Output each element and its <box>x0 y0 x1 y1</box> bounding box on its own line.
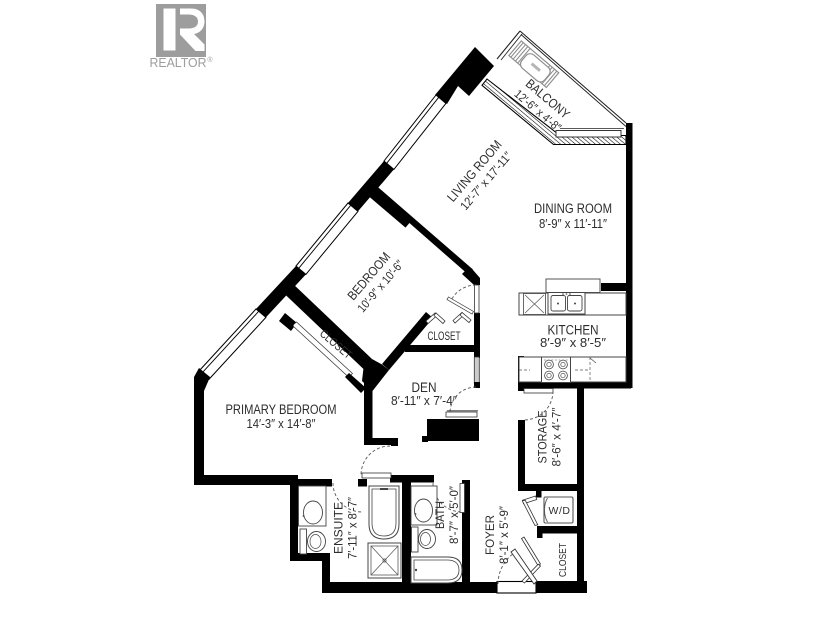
svg-text:8′-9″ x 8′-5″: 8′-9″ x 8′-5″ <box>540 336 607 350</box>
svg-text:STORAGE: STORAGE <box>536 411 550 464</box>
svg-text:W/D: W/D <box>549 505 571 517</box>
svg-text:DINING ROOM: DINING ROOM <box>534 201 612 216</box>
svg-text:CLOSET: CLOSET <box>557 543 569 577</box>
svg-text:14′-3″ x 14′-8″: 14′-3″ x 14′-8″ <box>247 417 317 431</box>
svg-text:8′-7″ x 5′-0″: 8′-7″ x 5′-0″ <box>449 486 461 544</box>
svg-text:FOYER: FOYER <box>483 515 497 555</box>
svg-text:®: ® <box>207 56 213 64</box>
svg-text:DEN: DEN <box>412 380 437 395</box>
svg-text:8′-6″ x 4′-7″: 8′-6″ x 4′-7″ <box>552 408 564 467</box>
svg-text:ENSUITE: ENSUITE <box>332 502 346 554</box>
svg-text:PRIMARY BEDROOM: PRIMARY BEDROOM <box>226 402 337 417</box>
svg-text:8′-9″ x 11′-11″: 8′-9″ x 11′-11″ <box>539 217 608 231</box>
svg-text:BATH: BATH <box>433 501 447 529</box>
svg-text:8′-1″ x 5′-9″: 8′-1″ x 5′-9″ <box>499 506 511 564</box>
svg-text:REALTOR: REALTOR <box>150 56 207 70</box>
svg-text:8′-11″ x 7′-4″: 8′-11″ x 7′-4″ <box>391 394 458 408</box>
svg-text:CLOSET: CLOSET <box>428 331 461 343</box>
svg-text:7′-11″ x 8′-7″: 7′-11″ x 8′-7″ <box>348 497 360 559</box>
